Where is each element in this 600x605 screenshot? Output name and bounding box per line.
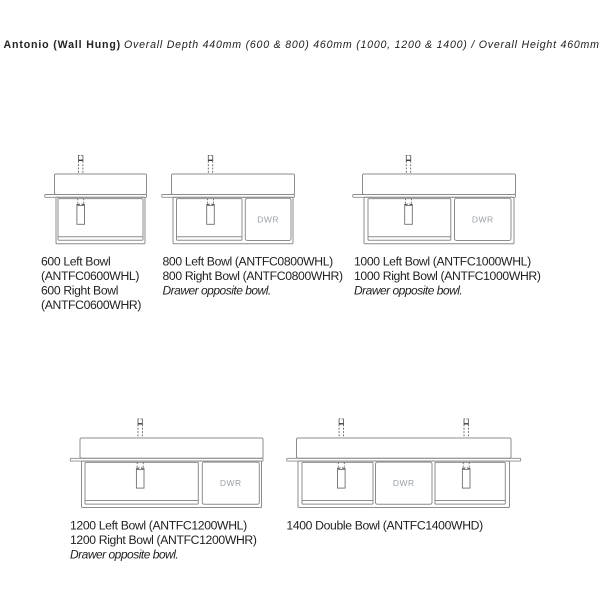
svg-text:Antonio (Wall Hung): Antonio (Wall Hung) (4, 39, 122, 51)
svg-text:Overall Depth 440mm (600 & 800: Overall Depth 440mm (600 & 800) 460mm (1… (124, 39, 600, 51)
svg-text:1000 Right Bowl (ANTFC1000WHR): 1000 Right Bowl (ANTFC1000WHR) (354, 269, 541, 283)
svg-text:(ANTFC0600WHL): (ANTFC0600WHL) (41, 269, 139, 283)
svg-text:600 Right Bowl: 600 Right Bowl (41, 284, 118, 298)
svg-text:800 Right Bowl (ANTFC0800WHR): 800 Right Bowl (ANTFC0800WHR) (163, 269, 343, 283)
svg-text:DWR: DWR (472, 214, 494, 224)
svg-text:Drawer opposite bowl.: Drawer opposite bowl. (163, 284, 271, 298)
svg-text:1200 Right Bowl (ANTFC1200WHR): 1200 Right Bowl (ANTFC1200WHR) (70, 533, 257, 547)
svg-text:(ANTFC0600WHR): (ANTFC0600WHR) (41, 298, 141, 312)
svg-text:DWR: DWR (257, 214, 279, 224)
svg-text:1000 Left Bowl (ANTFC1000WHL): 1000 Left Bowl (ANTFC1000WHL) (354, 255, 531, 269)
svg-text:800 Left Bowl (ANTFC0800WHL): 800 Left Bowl (ANTFC0800WHL) (163, 255, 334, 269)
svg-text:1400 Double Bowl (ANTFC1400WHD: 1400 Double Bowl (ANTFC1400WHD) (286, 519, 483, 533)
svg-text:1200 Left Bowl (ANTFC1200WHL): 1200 Left Bowl (ANTFC1200WHL) (70, 519, 247, 533)
svg-text:DWR: DWR (220, 478, 242, 488)
svg-text:Drawer opposite bowl.: Drawer opposite bowl. (354, 284, 462, 298)
svg-text:DWR: DWR (393, 478, 415, 488)
svg-text:600 Left Bowl: 600 Left Bowl (41, 255, 110, 269)
svg-text:Drawer opposite bowl.: Drawer opposite bowl. (70, 548, 178, 562)
